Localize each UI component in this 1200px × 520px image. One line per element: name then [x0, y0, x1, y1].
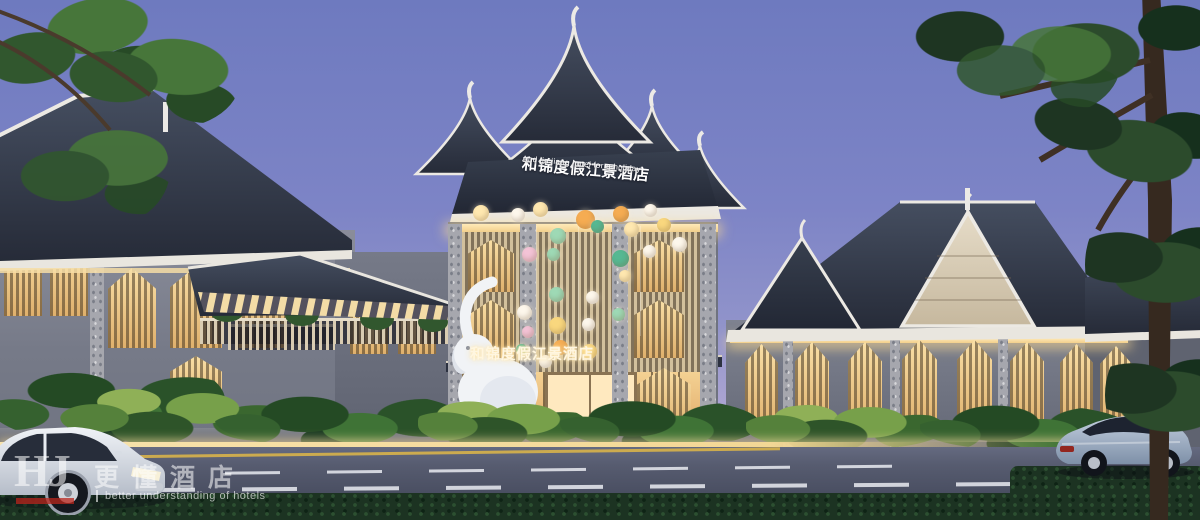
watermark-red-mark	[16, 498, 74, 504]
plants	[560, 398, 760, 448]
right-tree-canopy	[950, 10, 1120, 120]
balloon	[547, 248, 560, 261]
hotel-exterior-rendering: 和锦度假江景酒店 And jin jiang hotel for a holid…	[0, 0, 1200, 520]
balloon	[582, 318, 595, 331]
balloon	[511, 208, 525, 222]
watermark: HJ 更懂酒店 better understanding of hotels	[14, 450, 274, 512]
watermark-cn: 更懂酒店	[94, 458, 246, 494]
balloon	[619, 270, 631, 282]
balloon	[549, 287, 564, 302]
balloon	[473, 205, 489, 221]
balloon-string	[536, 226, 537, 352]
balloon	[550, 228, 566, 244]
balloon	[657, 218, 671, 232]
watermark-tagline: better understanding of hotels	[96, 490, 266, 502]
balloon	[643, 245, 656, 258]
balloon	[522, 326, 534, 338]
watermark-monogram: HJ	[14, 448, 69, 494]
balloon	[644, 204, 657, 217]
balloon	[613, 206, 629, 222]
balloon-string	[578, 226, 579, 346]
balloon	[533, 202, 548, 217]
balloon-string	[640, 226, 641, 336]
balloon	[672, 237, 687, 252]
balloon	[522, 247, 537, 262]
balloon	[612, 308, 625, 321]
balloon	[612, 250, 629, 267]
balloon	[591, 220, 604, 233]
bridge-roof	[188, 254, 452, 320]
balloon	[517, 305, 532, 320]
entrance-sign: 和锦度假江景酒店	[470, 343, 590, 364]
balloon	[549, 317, 566, 334]
balloon	[586, 291, 599, 304]
left-tree-branch	[0, 0, 260, 180]
balloon	[624, 222, 639, 237]
